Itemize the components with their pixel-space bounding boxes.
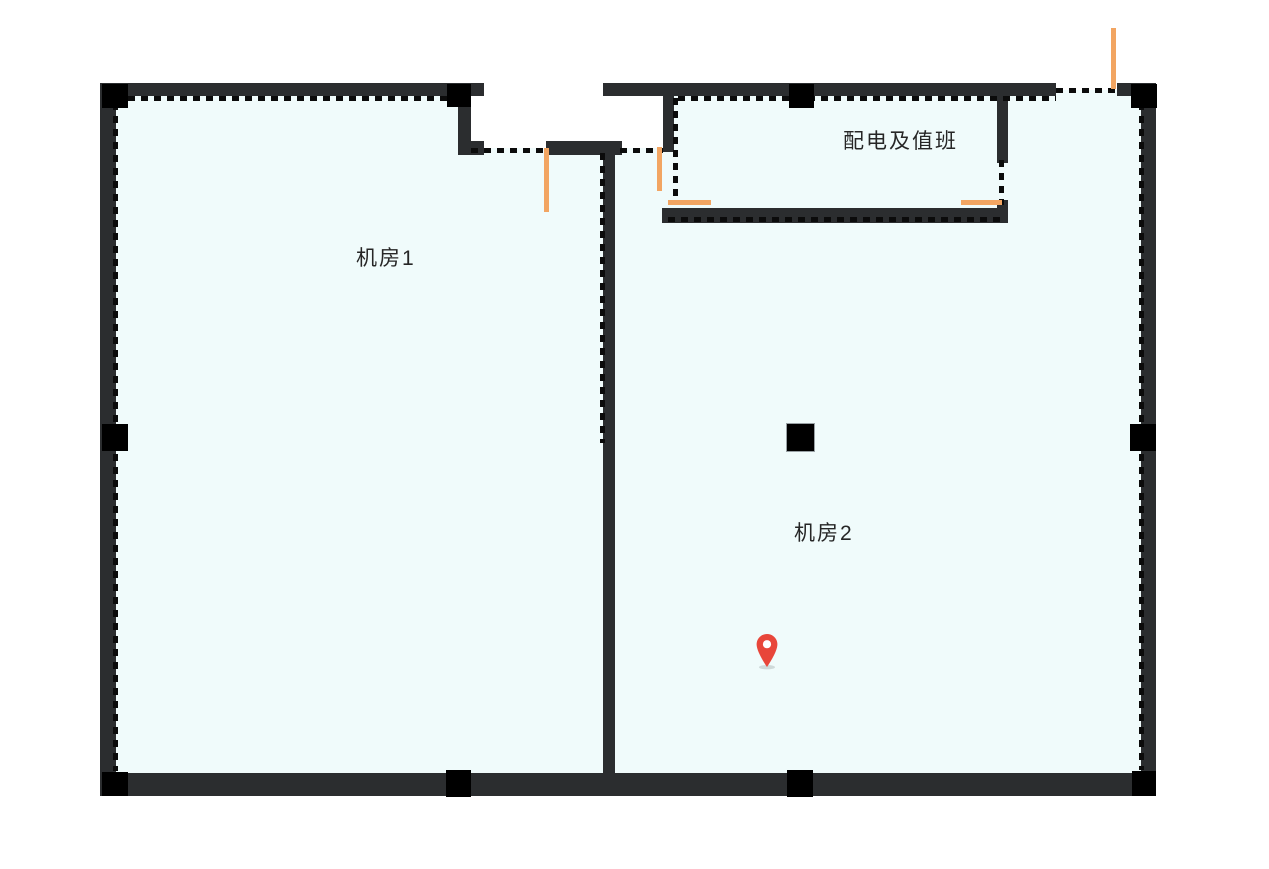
boundary-dash-peidian-left: [673, 98, 678, 205]
column-bottom-middle-1: [446, 770, 471, 797]
boundary-dash-door-opening-1: [471, 148, 547, 153]
column-bottom-right: [1132, 771, 1156, 796]
location-pin-svg: [753, 631, 781, 671]
column-right-middle: [1130, 424, 1156, 451]
wall-top-left: [100, 83, 484, 96]
column-freestanding: [786, 423, 815, 452]
boundary-dash-top-left: [115, 96, 458, 101]
column-top-middle: [789, 84, 814, 108]
boundary-dash-divider: [600, 153, 605, 443]
room-label-jifang1: 机房1: [356, 248, 416, 269]
room-label-jifang2: 机房2: [794, 523, 854, 544]
wall-peidian-right: [997, 95, 1008, 163]
room-label-peidian: 配电及值班: [843, 131, 958, 152]
door-leaf-peidian-right[interactable]: [961, 200, 1002, 205]
column-top-left: [102, 84, 128, 108]
door-leaf-exterior-top[interactable]: [1111, 28, 1116, 89]
boundary-dash-peidian-right-door: [999, 160, 1004, 205]
boundary-dash-door-opening-top: [1056, 88, 1117, 93]
column-left-middle: [102, 424, 128, 451]
boundary-dash-top-right: [678, 96, 1056, 101]
wall-bottom: [100, 773, 1156, 796]
room-floor-jifang1-jifang2[interactable]: [108, 148, 1152, 785]
boundary-dash-peidian-bottom: [668, 217, 1005, 222]
door-leaf-jifang2-entry[interactable]: [657, 147, 662, 191]
floor-plan-canvas: 机房1 机房2 配电及值班: [0, 0, 1269, 869]
location-pin-icon[interactable]: [753, 631, 781, 676]
column-bottom-middle-2: [787, 770, 813, 797]
column-top-right: [1131, 84, 1157, 108]
column-bottom-left: [102, 772, 128, 796]
column-top-notch: [447, 84, 471, 107]
door-leaf-jifang1[interactable]: [544, 148, 549, 212]
door-leaf-peidian-left[interactable]: [668, 200, 711, 205]
